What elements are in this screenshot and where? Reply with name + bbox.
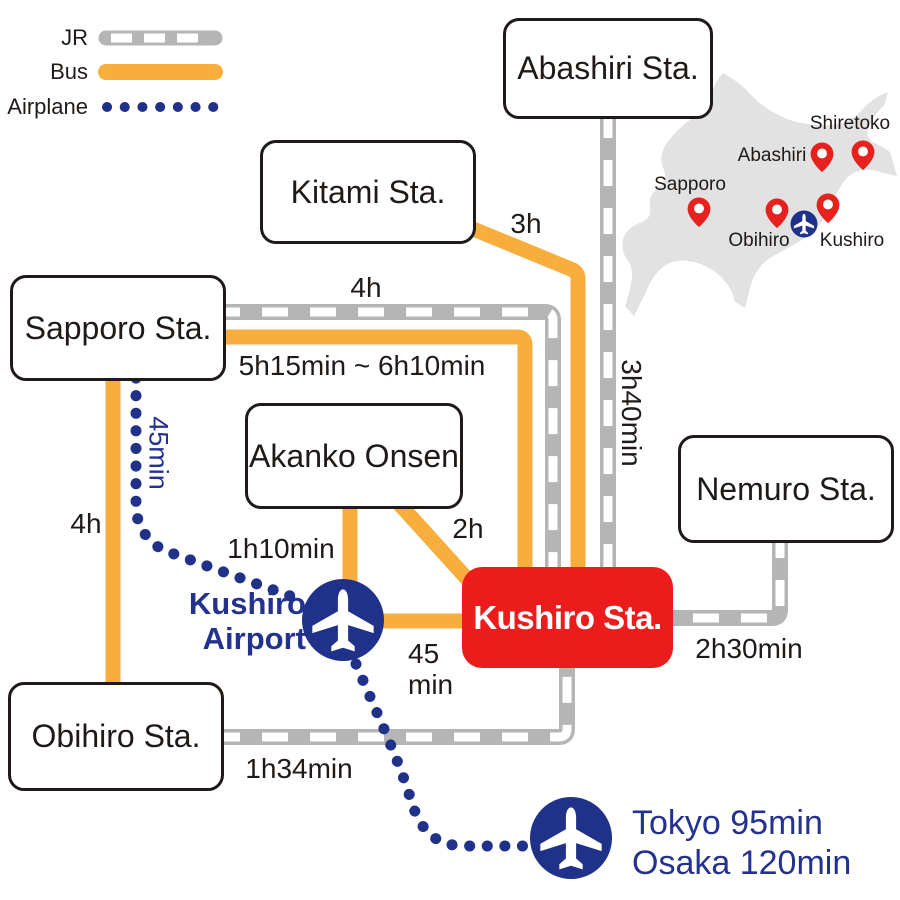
tokyo-osaka-flight-icon (530, 797, 612, 879)
kushiro-airport-label: Kushiro Airport (100, 586, 306, 656)
minimap-label-sapporo: Sapporo (654, 174, 726, 196)
duration-sapporo-jr: 4h (350, 272, 381, 304)
station-box-akanko-onsen: Akanko Onsen (245, 403, 463, 509)
legend-airplane-label: Airplane (0, 94, 88, 120)
duration-akanko-kushiro-bus: 2h (452, 513, 483, 545)
station-box-kushiro: Kushiro Sta. (462, 567, 673, 668)
duration-sapporo-obihiro-bus: 4h (70, 508, 101, 540)
duration-nemuro-jr: 2h30min (695, 633, 802, 665)
station-box-kitami: Kitami Sta. (260, 140, 476, 244)
legend: JR Bus Airplane (0, 0, 230, 130)
duration-obihiro-jr: 1h34min (245, 753, 352, 785)
kushiro-airport-label-line2: Airport (100, 621, 306, 656)
minimap-label-kushiro: Kushiro (820, 230, 884, 252)
jr-line-nemuro-kushiro-dash (670, 532, 780, 618)
access-map-diagram: JR Bus Airplane Abashiri Sta. Kitami Sta… (0, 0, 900, 900)
jr-line-obihiro-kushiro-dash (214, 658, 567, 737)
station-box-sapporo: Sapporo Sta. (10, 275, 226, 381)
jr-line-obihiro-kushiro (214, 658, 567, 737)
kushiro-airport-label-line1: Kushiro (100, 586, 306, 621)
duration-airport-bus-line2: min (408, 669, 453, 700)
duration-airport-kushiro-bus: 45 min (408, 638, 453, 700)
flight-tokyo-label: Tokyo 95min (632, 803, 851, 843)
station-box-abashiri: Abashiri Sta. (503, 18, 713, 119)
duration-airport-bus-line1: 45 (408, 638, 453, 669)
airplane-line-sample (98, 97, 223, 117)
minimap-plane-icon (791, 211, 818, 238)
duration-sapporo-flight: 45min (143, 416, 174, 490)
duration-kitami-bus: 3h (510, 208, 541, 240)
minimap-label-obihiro: Obihiro (728, 230, 789, 252)
flights-label: Tokyo 95min Osaka 120min (632, 803, 851, 883)
minimap-label-shiretoko: Shiretoko (810, 113, 890, 135)
flight-osaka-label: Osaka 120min (632, 843, 851, 883)
station-box-obihiro: Obihiro Sta. (8, 682, 224, 791)
jr-line-nemuro-kushiro (670, 532, 780, 618)
station-box-nemuro: Nemuro Sta. (678, 435, 894, 543)
minimap-label-abashiri: Abashiri (738, 145, 807, 167)
legend-jr-label: JR (0, 25, 88, 51)
bus-line-sample (98, 62, 223, 82)
duration-akanko-airport-bus: 1h10min (227, 533, 334, 565)
jr-line-sample (98, 28, 223, 48)
duration-sapporo-bus: 5h15min ~ 6h10min (239, 350, 486, 382)
legend-bus-label: Bus (0, 59, 88, 85)
duration-abashiri-jr: 3h40min (615, 359, 647, 466)
kushiro-airport-icon (302, 579, 384, 661)
